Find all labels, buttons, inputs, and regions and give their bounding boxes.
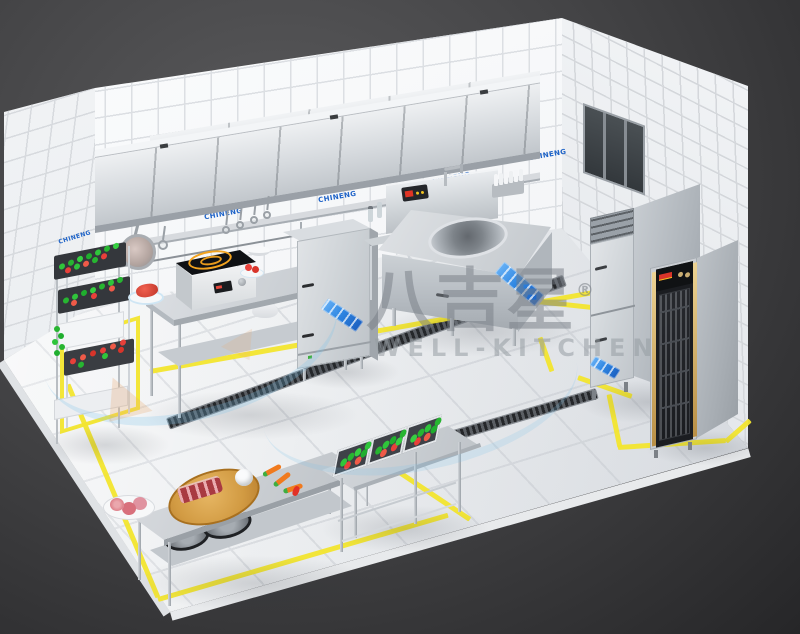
fridge-foot-2 xyxy=(624,382,628,392)
dough-ball xyxy=(235,469,253,486)
cabinet-knob-2 xyxy=(685,272,690,278)
hanging-ladle-1 xyxy=(222,226,230,234)
window-mullion-1 xyxy=(603,112,606,179)
cabinet-knob-1 xyxy=(678,271,683,277)
hanging-ladle-3 xyxy=(250,216,258,224)
cut-table-leg-front-left xyxy=(168,542,171,606)
meat-slices xyxy=(110,498,124,511)
cut-table-leg-back-left xyxy=(138,520,141,580)
vegetables-tray-1 xyxy=(59,263,65,270)
disinfection-cabinet-side xyxy=(697,232,742,442)
side-table-bottles xyxy=(368,206,373,222)
hanging-skimmer xyxy=(158,240,168,250)
hanging-ladle-2 xyxy=(236,221,244,229)
fridge-handle-1 xyxy=(595,265,607,271)
faucet-riser xyxy=(444,172,447,186)
shadow-sink xyxy=(320,505,490,553)
faucet-spout xyxy=(460,164,463,173)
registered-mark: ® xyxy=(576,280,596,301)
cabinet-glass-door xyxy=(659,288,690,441)
watermark-cn-text: 八吉星 xyxy=(366,262,576,341)
wok-display xyxy=(405,190,414,197)
shadow-rack xyxy=(40,425,170,465)
cabinet-gold-trim-right xyxy=(693,262,697,437)
cabinet-foot-2 xyxy=(688,442,692,450)
cabinet-red-logo xyxy=(659,272,672,281)
condiment-bottles xyxy=(494,174,498,186)
fridge-front xyxy=(590,234,634,388)
fridge-door-seam xyxy=(591,305,635,317)
cabinet-foot-1 xyxy=(654,450,658,458)
kitchen-3d-render: CHINENG CHINENG CHINENG CHINENG CHINENG xyxy=(0,0,800,634)
fridge-foot-1 xyxy=(592,390,596,400)
vegetables-tray-2 xyxy=(63,297,69,304)
window-mullion-2 xyxy=(624,120,627,187)
hanging-ladle-4 xyxy=(263,211,271,219)
watermark-english: WELL-KITCHEN xyxy=(374,334,660,362)
watermark-chinese: 八吉星® xyxy=(366,268,596,336)
wok-buttons xyxy=(416,191,419,194)
